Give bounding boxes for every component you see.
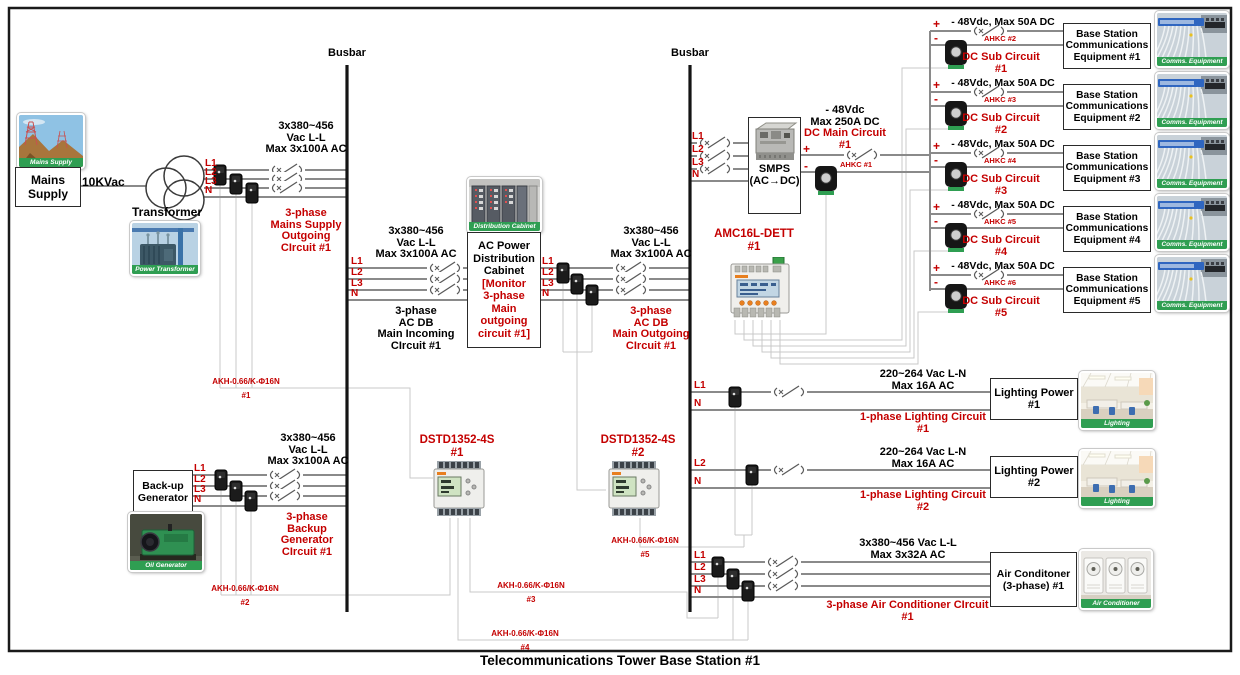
smps-phase-l3: L3 [692, 158, 704, 168]
lighting2-circuit-label: 1-phase Lighting Circuit #2 [838, 490, 1008, 513]
aircon-phase-n: N [694, 586, 701, 596]
outgoing-phase-l2: L2 [542, 268, 554, 278]
dc-main-rating: - 48Vdc Max 250A DC [798, 105, 892, 128]
lighting1-neutral-label: N [694, 399, 701, 409]
transformer-photo-caption: Power Transformer [132, 265, 198, 274]
aircon-photo-caption: Air Conditioner [1081, 599, 1151, 608]
smps-phase-l2: L2 [692, 145, 704, 155]
sub4-sensor-label: AHKC #5 [984, 217, 1016, 226]
dc-main-minus-label: - [804, 161, 808, 172]
dstd1-meter [432, 461, 486, 521]
outgoing-phase-l1: L1 [542, 257, 554, 267]
sub2-photo-caption: Comms. Equipment [1157, 118, 1227, 127]
sub4-plus-label: + [933, 202, 940, 213]
sub1-equipment-box: Base Station Communications Equipment #1 [1063, 23, 1151, 69]
lighting1-photo: Lighting [1079, 371, 1155, 430]
smps-illustration [752, 121, 798, 163]
amc16l-meter-illustration [729, 257, 791, 320]
generator-phase-l1: L1 [194, 464, 206, 474]
lighting2-rating: 220~264 Vac L-N Max 16A AC [843, 447, 1003, 470]
sub5-rating: - 48Vdc, Max 50A DC [944, 261, 1062, 272]
dstd2-label: DSTD1352-4S #2 [588, 434, 688, 459]
lighting1-circuit-label: 1-phase Lighting Circuit #1 [838, 412, 1008, 435]
mains-supply-box: Mains Supply [15, 167, 81, 207]
generator-photo-caption: Oil Generator [130, 561, 202, 570]
smps-box-label: SMPS (AC→DC) [749, 163, 799, 187]
busbar-right-label: Busbar [655, 47, 725, 59]
aircon-box: Air Conditoner (3-phase) #1 [990, 552, 1077, 607]
ct4-model-label: AKH-0.66/K-Φ16N #4 [466, 627, 584, 655]
dc-main-circuit-label: DC Main Circuit #1 [795, 128, 895, 151]
transformer-label: Transformer [126, 206, 208, 219]
sub3-sensor-label: AHKC #4 [984, 156, 1016, 165]
sub4-photo-caption: Comms. Equipment [1157, 240, 1227, 249]
mains-circuit-label: 3-phase Mains Supply Outgoing CIrcuit #1 [250, 208, 362, 254]
sub4-circuit-label: DC Sub Circuit #4 [942, 235, 1060, 258]
mains-supply-photo: Mains Supply [17, 113, 85, 169]
outgoing-rating: 3x380~456 Vac L-L Max 3x100A AC [598, 226, 704, 261]
mains-rating: 3x380~456 Vac L-L Max 3x100A AC [253, 121, 359, 156]
aircon-phase-l1: L1 [694, 551, 706, 561]
lighting2-box: Lighting Power #2 [990, 456, 1078, 498]
lighting1-box: Lighting Power #1 [990, 378, 1078, 420]
sub5-sensor-label: AHKC #6 [984, 278, 1016, 287]
lighting2-phase-label: L2 [694, 459, 706, 469]
backup-generator-box: Back-up Generator [133, 470, 193, 514]
oil-generator-photo: Oil Generator [128, 512, 204, 572]
power-transformer-photo: Power Transformer [130, 221, 200, 276]
lighting2-photo: Lighting [1079, 449, 1155, 508]
sub1-comms-photo: Comms. Equipment [1155, 11, 1229, 68]
generator-ct-model-label: AKH-0.66/K-Φ16N #2 [186, 582, 304, 610]
sub3-circuit-label: DC Sub Circuit #3 [942, 174, 1060, 197]
sub2-minus-label: - [934, 94, 938, 105]
mains-photo-caption: Mains Supply [19, 158, 83, 167]
diagram-title: Telecommunications Tower Base Station #1 [0, 653, 1240, 668]
sub1-minus-label: - [934, 33, 938, 44]
sub3-photo-caption: Comms. Equipment [1157, 179, 1227, 188]
sub5-equipment-box: Base Station Communications Equipment #5 [1063, 267, 1151, 313]
ac-distribution-cabinet-box: AC Power Distribution Cabinet [Monitor 3… [467, 232, 541, 348]
aircon-phase-l3: L3 [694, 575, 706, 585]
sub5-comms-photo: Comms. Equipment [1155, 255, 1229, 312]
ct3-model-label: AKH-0.66/K-Φ16N #3 [472, 579, 590, 607]
generator-rating: 3x380~456 Vac L-L Max 3x100A AC [255, 433, 361, 468]
cabinet-box-title: AC Power Distribution Cabinet [473, 240, 535, 278]
sub1-rating: - 48Vdc, Max 50A DC [944, 17, 1062, 28]
cabinet-photo-caption: Distribution Cabinet [469, 222, 540, 231]
generator-phase-n: N [194, 495, 201, 505]
outgoing-phase-n: N [542, 289, 549, 299]
sub2-rating: - 48Vdc, Max 50A DC [944, 78, 1062, 89]
sub3-plus-label: + [933, 141, 940, 152]
amc16l-label: AMC16L-DETT #1 [704, 228, 804, 253]
aircon-rating: 3x380~456 Vac L-L Max 3x32A AC [828, 538, 988, 561]
incoming-phase-l2: L2 [351, 268, 363, 278]
aircon-phase-l2: L2 [694, 563, 706, 573]
smps-phase-n: N [692, 170, 699, 180]
sub1-photo-caption: Comms. Equipment [1157, 57, 1227, 66]
dstd2-meter-illustration [607, 461, 661, 516]
lighting2-photo-caption: Lighting [1081, 497, 1153, 506]
generator-circuit-label: 3-phase Backup Generator CIrcuit #1 [254, 512, 360, 558]
sub2-plus-label: + [933, 80, 940, 91]
sub4-rating: - 48Vdc, Max 50A DC [944, 200, 1062, 211]
sub3-comms-photo: Comms. Equipment [1155, 133, 1229, 190]
mains-phase-n: N [205, 186, 212, 196]
sub3-equipment-box: Base Station Communications Equipment #3 [1063, 145, 1151, 191]
sub1-circuit-label: DC Sub Circuit #1 [942, 52, 1060, 75]
sub5-minus-label: - [934, 277, 938, 288]
ct5-model-label: AKH-0.66/K-Φ16N #5 [586, 534, 704, 562]
single-line-diagram: Busbar Busbar Telecommunications Tower B… [0, 0, 1240, 675]
busbar-left-label: Busbar [312, 47, 382, 59]
dstd1-meter-illustration [432, 461, 486, 516]
amc16l-meter [729, 257, 791, 325]
sub1-plus-label: + [933, 19, 940, 30]
distribution-cabinet-photo: Distribution Cabinet [467, 177, 542, 233]
sub2-sensor-label: AHKC #3 [984, 95, 1016, 104]
smps-phase-l1: L1 [692, 132, 704, 142]
smps-box: SMPS (AC→DC) [748, 117, 801, 214]
sub2-comms-photo: Comms. Equipment [1155, 72, 1229, 129]
sub3-minus-label: - [934, 155, 938, 166]
sub4-equipment-box: Base Station Communications Equipment #4 [1063, 206, 1151, 252]
sub4-comms-photo: Comms. Equipment [1155, 194, 1229, 251]
incoming-rating: 3x380~456 Vac L-L Max 3x100A AC [363, 226, 469, 261]
aircon-photo: Air Conditioner [1079, 549, 1153, 610]
sub5-plus-label: + [933, 263, 940, 274]
lighting1-phase-label: L1 [694, 381, 706, 391]
sub2-circuit-label: DC Sub Circuit #2 [942, 113, 1060, 136]
aircon-circuit-label: 3-phase Air Conditioner CIrcuit #1 [815, 600, 1000, 623]
mains-ct-model-label: AKH-0.66/K-Φ16N #1 [187, 375, 305, 403]
sub5-circuit-label: DC Sub Circuit #5 [942, 296, 1060, 319]
lighting1-rating: 220~264 Vac L-N Max 16A AC [843, 369, 1003, 392]
cabinet-box-monitor-note: [Monitor 3-phase Main outgoing circuit #… [478, 278, 530, 341]
incoming-circuit-label: 3-phase AC DB Main Incoming CIrcuit #1 [361, 306, 471, 352]
dstd1-label: DSTD1352-4S #1 [407, 434, 507, 459]
outgoing-circuit-label: 3-phase AC DB Main Outgoing CIrcuit #1 [594, 306, 708, 352]
sub4-minus-label: - [934, 216, 938, 227]
incoming-phase-l1: L1 [351, 257, 363, 267]
sub3-rating: - 48Vdc, Max 50A DC [944, 139, 1062, 150]
dc-main-sensor-label: AHKC #1 [840, 160, 872, 169]
sub2-equipment-box: Base Station Communications Equipment #2 [1063, 84, 1151, 130]
mains-voltage-label: 10KVac [82, 176, 142, 189]
lighting1-photo-caption: Lighting [1081, 419, 1153, 428]
sub1-sensor-label: AHKC #2 [984, 34, 1016, 43]
dstd2-meter [607, 461, 661, 521]
incoming-phase-n: N [351, 289, 358, 299]
sub5-photo-caption: Comms. Equipment [1157, 301, 1227, 310]
lighting2-neutral-label: N [694, 477, 701, 487]
